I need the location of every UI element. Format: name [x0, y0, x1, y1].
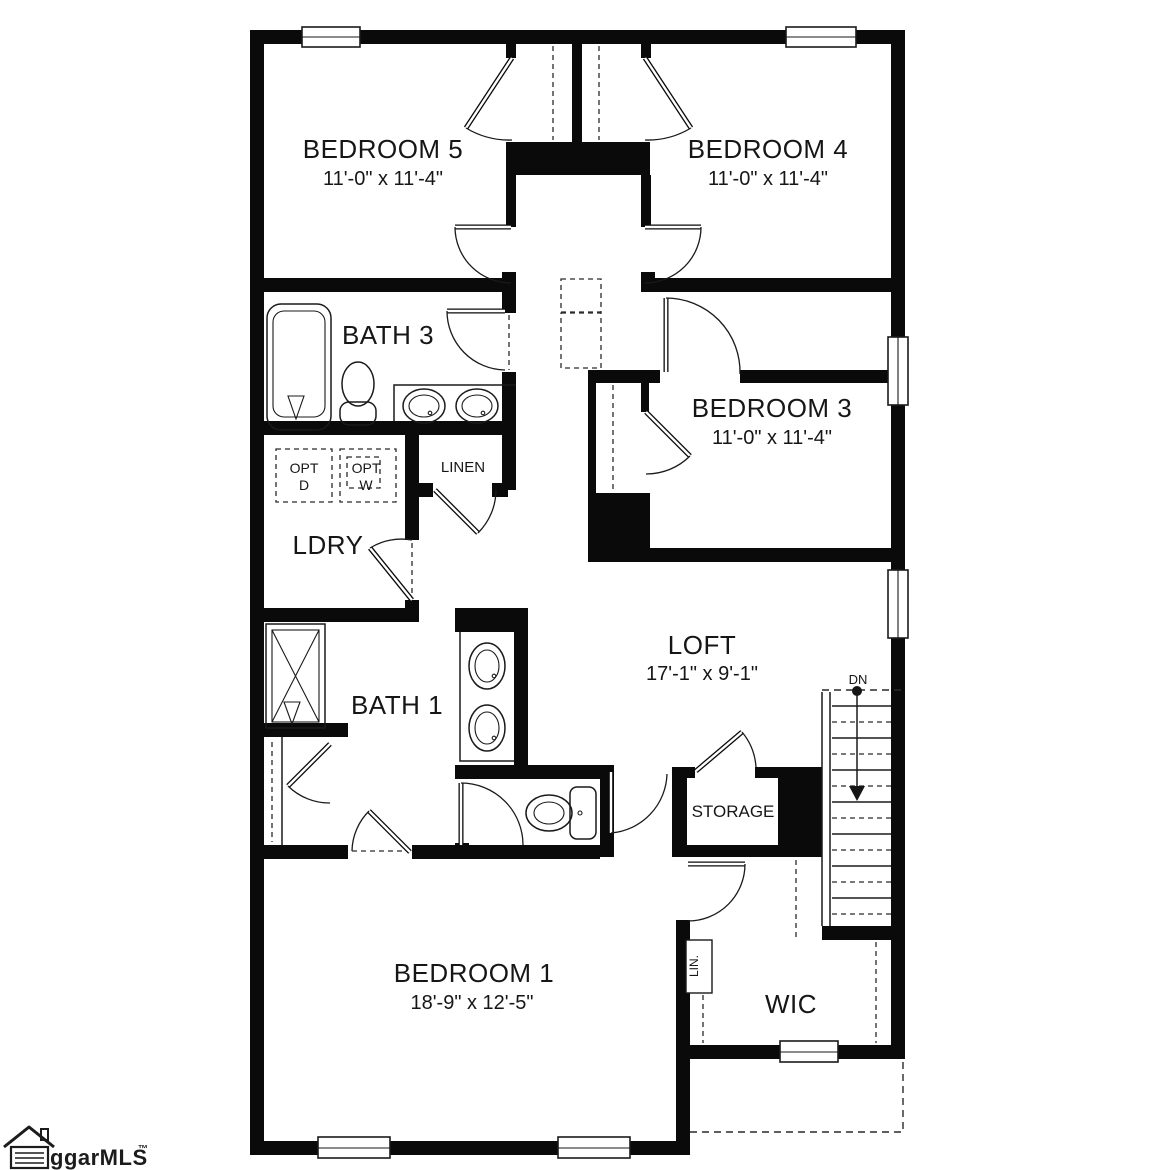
vanity-bath3: [394, 385, 516, 423]
floor-plan-drawing: BEDROOM 5 11'-0" x 11'-4" BEDROOM 4 11'-…: [0, 0, 1150, 1170]
label-stairs-dn: DN: [849, 672, 868, 687]
label-opt-w-1: OPT: [352, 460, 381, 476]
window: [302, 27, 360, 47]
stairs: [822, 690, 903, 926]
window: [318, 1137, 390, 1158]
bath3-door: [447, 311, 509, 370]
label-opt-d-1: OPT: [290, 460, 319, 476]
room-label-bedroom5: BEDROOM 5: [303, 134, 464, 164]
bedroom3-entry-door: [666, 298, 740, 374]
walls: [250, 30, 905, 1155]
room-label-loft: LOFT: [668, 630, 736, 660]
room-label-linen: LINEN: [441, 459, 485, 476]
logo-trademark: ™: [138, 1144, 148, 1155]
window: [888, 570, 908, 638]
room-label-bath1: BATH 1: [351, 690, 443, 720]
window: [558, 1137, 630, 1158]
room-dims-bedroom5: 11'-0" x 11'-4": [323, 168, 443, 190]
roof-line: [688, 1062, 903, 1132]
wic-door: [688, 864, 745, 921]
room-label-bedroom3: BEDROOM 3: [692, 393, 853, 423]
label-opt-d-2: D: [299, 477, 309, 493]
room-label-bedroom4: BEDROOM 4: [688, 134, 849, 164]
label-opt-w-2: W: [359, 477, 373, 493]
laundry-door: [370, 539, 412, 600]
bedroom1-bath-door: [352, 811, 410, 852]
room-label-wic: WIC: [765, 989, 817, 1019]
labels: BEDROOM 5 11'-0" x 11'-4" BEDROOM 4 11'-…: [290, 134, 868, 1019]
bedroom1-closet-door: [288, 744, 330, 803]
logo-text: ggarMLS: [50, 1145, 148, 1170]
room-dims-bedroom3: 11'-0" x 11'-4": [712, 427, 832, 449]
dashed-elements: [272, 46, 903, 1132]
water-closet-door: [461, 783, 523, 845]
window: [780, 1041, 838, 1062]
bedroom1-entry-door: [611, 772, 667, 833]
room-label-storage: STORAGE: [692, 802, 775, 821]
windows: [302, 27, 908, 1158]
mls-logo: ggarMLS ™: [4, 1127, 148, 1170]
floor-plan-page: BEDROOM 5 11'-0" x 11'-4" BEDROOM 4 11'-…: [0, 0, 1150, 1170]
vanity-bath1: [460, 632, 514, 761]
room-label-lin: LIN.: [687, 955, 701, 977]
room-label-bath3: BATH 3: [342, 320, 434, 350]
attic-access: [561, 279, 601, 368]
stairs-down-arrow: [849, 686, 865, 801]
bathtub: [267, 304, 331, 430]
room-dims-bedroom1: 18'-9" x 12'-5": [410, 992, 533, 1014]
room-dims-loft: 17'-1" x 9'-1": [646, 663, 758, 685]
room-label-bedroom1: BEDROOM 1: [394, 958, 555, 988]
linen-door: [435, 490, 496, 533]
window: [786, 27, 856, 47]
bedroom5-closet-door: [466, 58, 512, 140]
toilet-water-closet: [526, 787, 596, 839]
bedroom4-closet-door: [645, 58, 691, 140]
window: [888, 337, 908, 405]
room-dims-bedroom4: 11'-0" x 11'-4": [708, 168, 828, 190]
storage-door: [696, 732, 756, 771]
bedroom3-closet-door: [646, 412, 690, 474]
shower-bath1: [266, 624, 325, 728]
room-label-ldry: LDRY: [293, 530, 364, 560]
house-icon: [4, 1127, 54, 1168]
toilet-bath3: [340, 362, 376, 425]
